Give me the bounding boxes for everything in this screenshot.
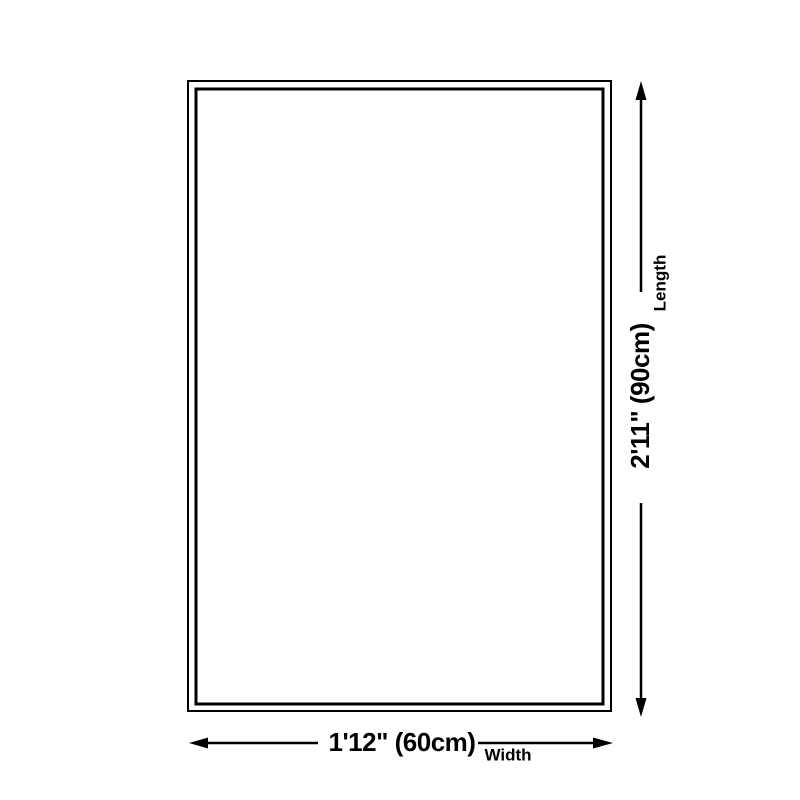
arrow-left-icon: [189, 738, 208, 749]
product-outline-outer: [188, 81, 611, 711]
length-value: 2'11" (90cm): [627, 323, 653, 469]
arrow-right-icon: [593, 738, 613, 749]
length-label: Length: [652, 255, 669, 312]
size-diagram: 2'11" (90cm) Length 1'12" (60cm) Width: [0, 0, 800, 800]
arrow-up-icon: [636, 81, 647, 100]
product-outline-inner: [196, 89, 603, 704]
arrow-down-icon: [636, 698, 647, 717]
width-label: Width: [484, 747, 531, 764]
width-value: 1'12" (60cm): [329, 729, 476, 755]
diagram-graphics: [0, 0, 800, 800]
